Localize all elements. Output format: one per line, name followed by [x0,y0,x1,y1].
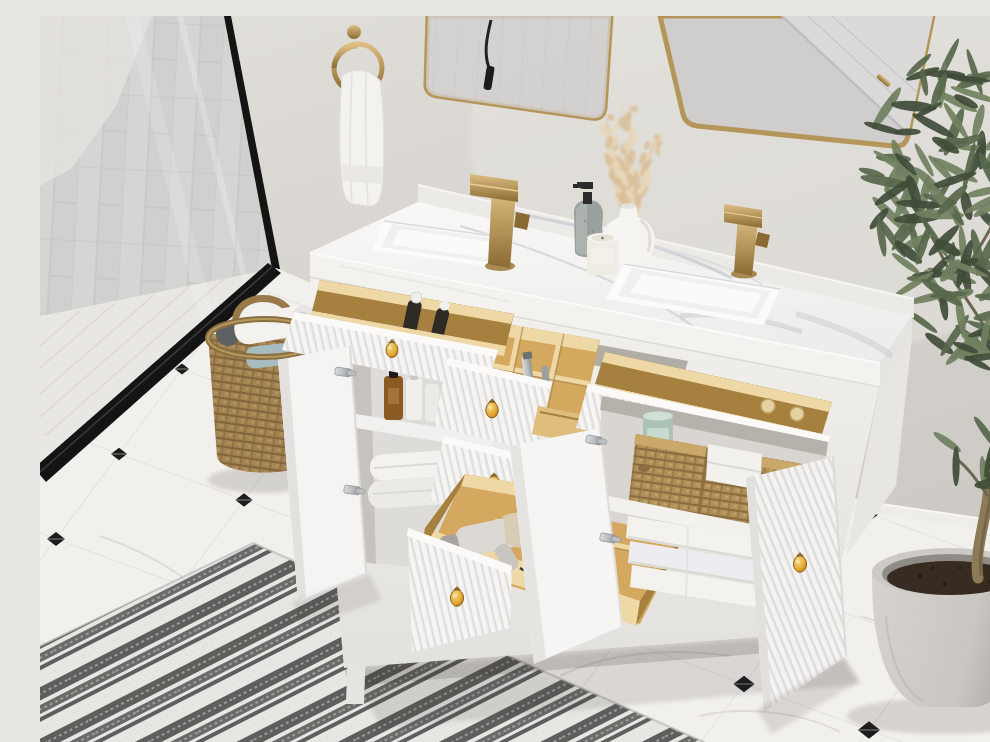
jar-candle [587,233,618,275]
cabinet-leg-left [346,664,365,704]
mirror-right [660,16,940,146]
scene-canvas [40,16,990,742]
lotion-bottle [406,378,422,420]
pump-neck [583,192,592,204]
bathroom-photo [40,16,990,742]
